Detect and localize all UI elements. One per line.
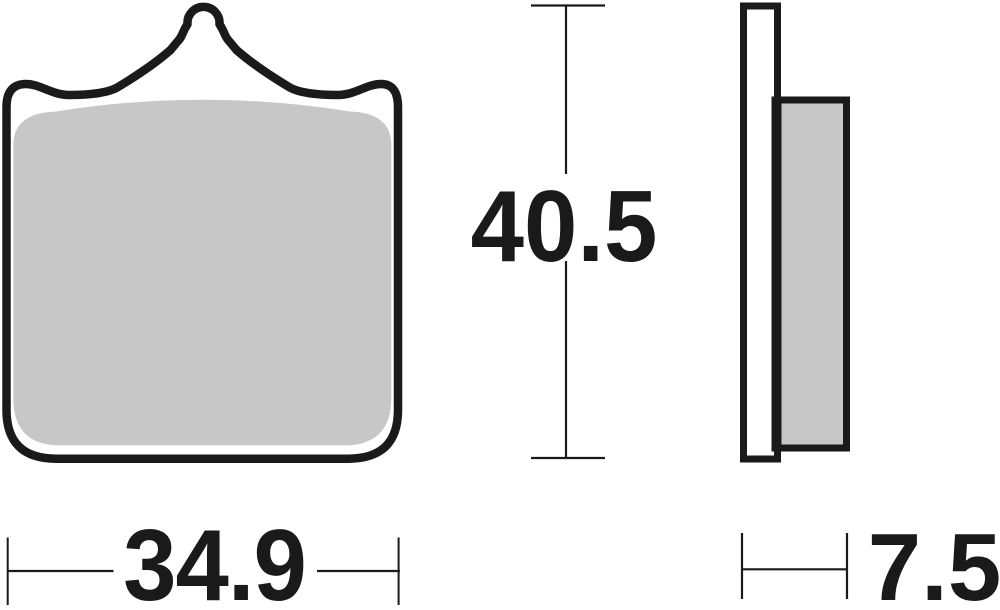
svg-text:40.5: 40.5 [471,170,658,283]
svg-text:34.9: 34.9 [123,509,306,610]
svg-text:7.5: 7.5 [868,514,1000,610]
